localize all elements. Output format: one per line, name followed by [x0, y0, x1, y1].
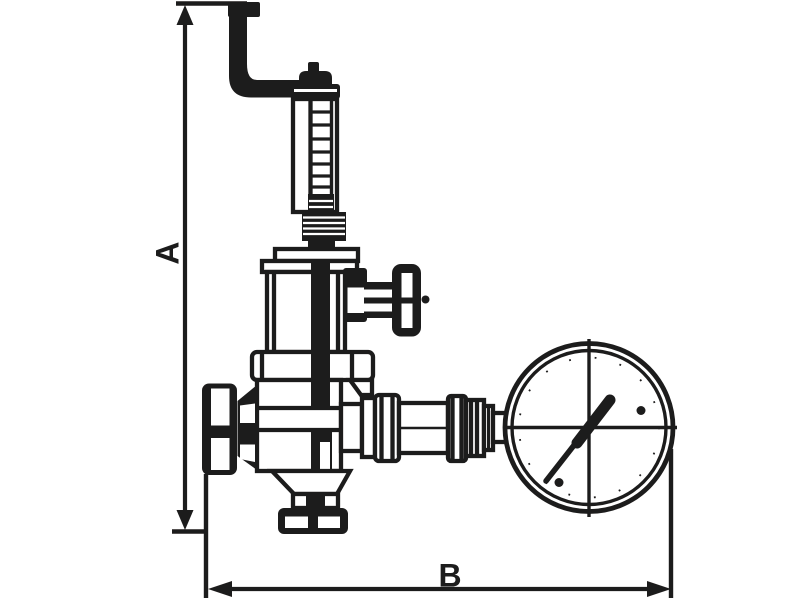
svg-text:A: A: [150, 241, 186, 264]
svg-text:B: B: [438, 558, 461, 594]
